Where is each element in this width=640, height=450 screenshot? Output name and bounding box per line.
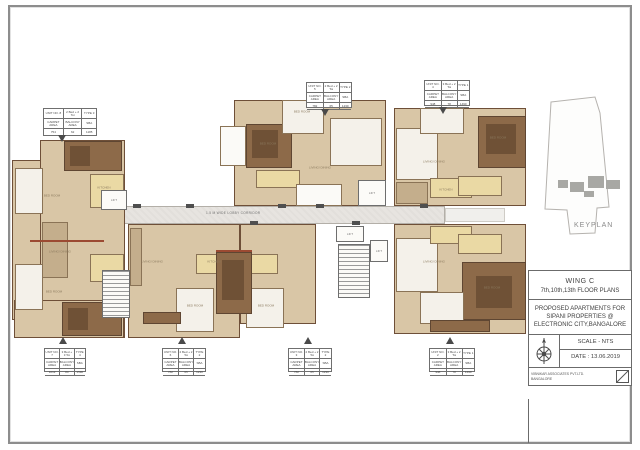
room-white-shape [330,118,382,166]
room-white-shape [15,264,43,310]
unit-table-header-cell: TYPE 1 [463,349,474,359]
room-dark-shape [222,260,244,300]
room-cream-shape [256,170,300,188]
unit-table-label-cell: BALCONY AREA [64,119,83,129]
unit-table-label-cell: CARPET AREA [425,91,442,101]
room-label: LIVING/ DINING [423,260,445,263]
drawing-sheet: LIFTLIFTLIFTLIFTBED ROOMKITCHENLIVING/ D… [0,0,640,450]
unit-table-value-cell: 84 [60,369,74,376]
unit-table-label-cell: SBA [82,119,96,129]
unit-table-header-cell: 3 Bed + 2 Toi [442,81,458,91]
unit-table-header-cell: UNIT NO. 8 [44,109,64,119]
unit-table-label-cell: SBA [320,359,331,369]
unit-table-value-cell: 65 [305,369,320,376]
unit-table-value-cell: 78 [447,369,463,376]
unit-table-header-cell: 2 Bed + 2 Toi [179,349,194,359]
room-label: BED ROOM [490,136,506,139]
unit-table-value-cell: 1490 [458,101,469,108]
unit-table-label-cell: CARPET AREA [307,93,324,103]
unit-table-header-cell: 2 Bed + 2 Toi [64,109,83,119]
unit-table-value-cell: 1185 [82,129,96,136]
up-arrow-icon [178,337,186,344]
unit-table-label-cell: SBA [458,91,469,101]
room-white-shape [396,238,438,292]
unit-table-header-cell: TYPE 2 [340,83,351,93]
room-dark-shape [68,308,88,330]
unit-area-table: UNIT NO. 32 Bed + 2 ToiTYPE 2CARPET AREA… [288,348,332,372]
unit-table-label-cell: CARPET AREA [289,359,305,369]
down-arrow-icon [321,109,329,116]
unit-area-table: UNIT NO. 52 Bed + 2 ToiTYPE 2CARPET AREA… [306,82,352,108]
unit-table-header-cell: 2 Bed + 2 Toi [305,349,320,359]
keyplan-site-outline [538,72,638,242]
unit-table-value-cell: 948 [430,369,447,376]
tick-shape [133,204,141,208]
title-block-edge-line [528,399,529,443]
wall-red-shape [216,250,252,252]
room-label: BED ROOM [294,110,310,113]
unit-table-header-cell: UNIT NO. 7 [45,349,60,359]
unit-area-table: UNIT NO. 43 Bed + 2 ToiTYPE 1CARPET AREA… [424,80,470,106]
room-brown-shape [143,312,181,324]
unit-table-header-cell: TYPE 2 [194,349,205,359]
unit-table-header-cell: UNIT NO. 2 [430,349,447,359]
room-white-shape [15,168,43,214]
unit-table-label-cell: SBA [75,359,85,369]
room-label: BED ROOM [187,304,203,307]
room-label: BED ROOM [484,286,500,289]
lift-shaft: LIFT [358,180,386,206]
unit-table-header-cell: UNIT NO. 4 [425,81,442,91]
unit-table-label-cell: BALCONY AREA [324,93,340,103]
unit-table-header-cell: UNIT NO. 6 [163,349,179,359]
unit-table-label-cell: SBA [340,93,351,103]
unit-table-header-cell: 2 Bed + 2 Toi [324,83,340,93]
room-label: LIVING/ DINING [49,250,71,253]
up-arrow-icon [304,337,312,344]
scale-value: SCALE - NTS [560,335,631,350]
room-label: BED ROOM [258,304,274,307]
room-label: BED ROOM [260,142,276,145]
tick-shape [250,221,258,225]
up-arrow-icon [446,337,454,344]
room-taupe-shape [396,182,428,204]
unit-table-value-cell: 65 [179,369,194,376]
room-label: LIVING/ DINING [309,166,331,169]
corridor-light-shape [445,208,505,222]
down-arrow-icon [439,107,447,114]
stair-shape [102,270,130,318]
unit-table-label-cell: SBA [194,359,205,369]
tick-shape [352,221,360,225]
unit-table-value-cell: 1490 [463,369,474,376]
tick-shape [186,204,194,208]
box-white-shape [220,126,246,166]
room-cream-shape [458,176,502,196]
room-label: BED ROOM [46,290,62,293]
unit-table-header-cell: UNIT NO. 3 [289,349,305,359]
diagonal-slash-box-icon [616,370,629,383]
unit-table-value-cell: 1230 [320,369,331,376]
unit-table-label-cell: CARPET AREA [430,359,447,369]
unit-table-value-cell: 1590 [75,369,85,376]
room-dark-shape [476,276,512,308]
date-value: DATE : 13.06.2019 [560,350,631,364]
room-taupe-shape [130,228,142,286]
up-arrow-icon [59,337,67,344]
unit-table-label-cell: BALCONY AREA [305,359,320,369]
compass-rose-icon [529,335,560,367]
title-block: WING C 7th,10th,13th FLOOR PLANS PROPOSE… [528,270,632,386]
unit-table-header-cell: TYPE 4 [75,349,85,359]
corridor-shape [95,206,445,224]
down-arrow-icon [58,135,66,142]
unit-table-header-cell: TYPE 1 [458,81,469,91]
room-label: LIVING/ DINING [141,260,163,263]
room-cream-shape [458,234,502,254]
unit-table-label-cell: CARPET AREA [44,119,64,129]
unit-table-label-cell: SBA [463,359,474,369]
wing-title: WING C [531,278,629,285]
tick-shape [420,204,428,208]
unit-table-value-cell: 62 [64,129,83,136]
room-label: BED ROOM [44,194,60,197]
firm-city: BANGALORE [531,377,616,382]
project-title: PROPOSED APARTMENTS FOR SIPANI PROPERTIE… [529,300,631,335]
room-white-shape [396,128,438,180]
room-white-shape [176,288,214,332]
corridor-label: 1.5 M WIDE LOBBY CORRIDOR [206,211,260,215]
unit-table-header-cell: TYPE 2 [320,349,331,359]
room-label: LIVING/ DINING [423,160,445,163]
tick-shape [316,204,324,208]
unit-table-label-cell: BALCONY AREA [60,359,74,369]
tick-shape [278,204,286,208]
unit-table-header-cell: TYPE 3 [82,109,96,119]
wall-red-shape [30,240,104,242]
unit-table-header-cell: UNIT NO. 5 [307,83,324,93]
keyplan-label: KEYPLAN [574,222,613,229]
unit-area-table: UNIT NO. 82 Bed + 2 ToiTYPE 3CARPET AREA… [43,108,97,136]
lift-shaft: LIFT [370,240,388,262]
unit-table-label-cell: CARPET AREA [163,359,179,369]
unit-table-value-cell: 1230 [340,103,351,110]
unit-table-label-cell: CARPET AREA [45,359,60,369]
floors-title: 7th,10th,13th FLOOR PLANS [531,288,629,294]
stair-shape [338,244,370,298]
unit-area-table: UNIT NO. 23 Bed + 2 ToiTYPE 1CARPET AREA… [429,348,475,372]
room-dark-shape [70,146,90,166]
room-label: KITCHEN [439,188,452,191]
box-white-shape [296,184,342,206]
unit-table-label-cell: BALCONY AREA [447,359,463,369]
unit-table-value-cell: 1012 [45,369,60,376]
unit-table-value-cell: 782 [163,369,179,376]
unit-table-label-cell: BALCONY AREA [179,359,194,369]
room-label: KITCHEN [207,260,220,263]
room-label: KITCHEN [97,186,110,189]
unit-table-header-cell: 3 Bed + 2 Toi [447,349,463,359]
unit-area-table: UNIT NO. 62 Bed + 2 ToiTYPE 2CARPET AREA… [162,348,206,372]
unit-area-table: UNIT NO. 73 Bed + 3 ToiTYPE 4CARPET AREA… [44,348,86,372]
unit-table-value-cell: 782 [289,369,305,376]
lift-shaft: LIFT [336,226,364,242]
room-brown-shape [430,320,490,332]
unit-table-label-cell: BALCONY AREA [442,91,458,101]
unit-table-header-cell: 3 Bed + 3 Toi [60,349,74,359]
lift-shaft: LIFT [101,190,127,210]
unit-table-value-cell: 1230 [194,369,205,376]
